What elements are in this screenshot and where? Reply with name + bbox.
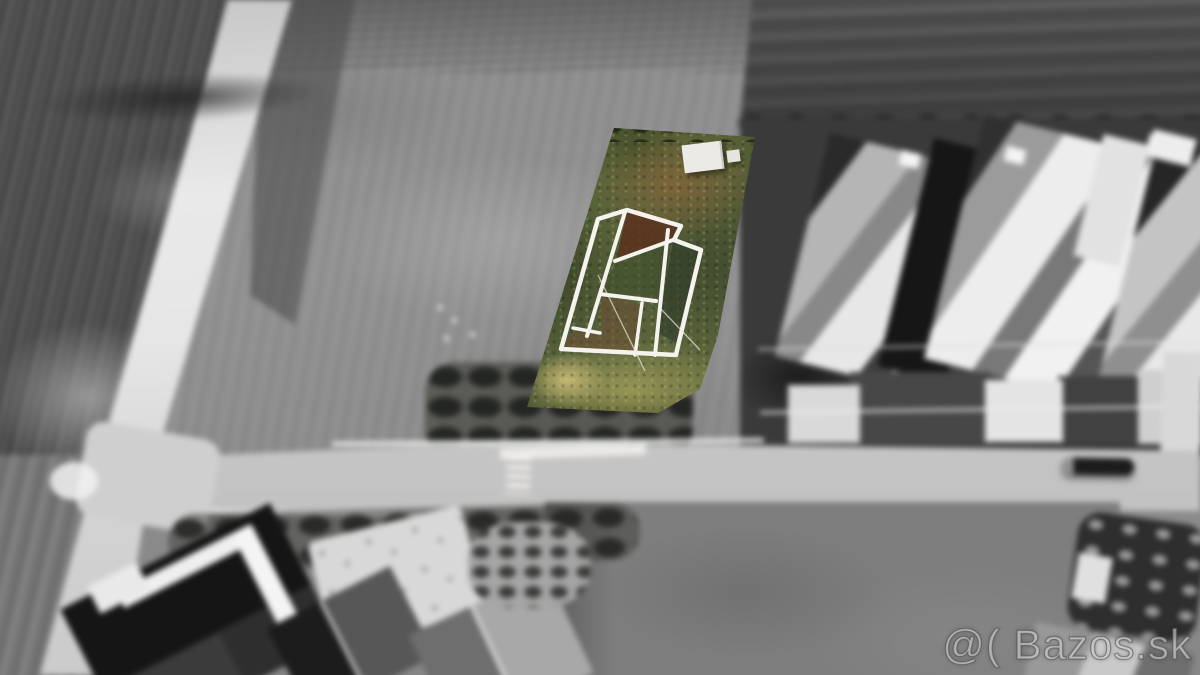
bazos-watermark: @( Bazos.sk	[942, 621, 1192, 669]
trees-bottom-center	[468, 522, 590, 608]
small-shed-box	[726, 149, 740, 162]
driveway-pad-1	[788, 385, 860, 443]
stone-speck	[452, 318, 457, 323]
junction-curb-arc	[50, 462, 98, 500]
aerial-photo: @( Bazos.sk	[0, 0, 1200, 675]
stone-speck	[470, 332, 475, 337]
roof-ridge	[470, 605, 520, 675]
bright-strip-right	[1160, 351, 1200, 454]
front-yard-dark-2	[1058, 376, 1142, 444]
entrance-steps	[505, 456, 531, 495]
stone-speck	[444, 336, 449, 341]
garden-shed-roof	[681, 141, 724, 174]
roof-plane	[108, 633, 244, 675]
stone-speck	[438, 305, 443, 310]
driveway-pad-2	[985, 380, 1063, 442]
car-on-street	[1062, 457, 1134, 475]
